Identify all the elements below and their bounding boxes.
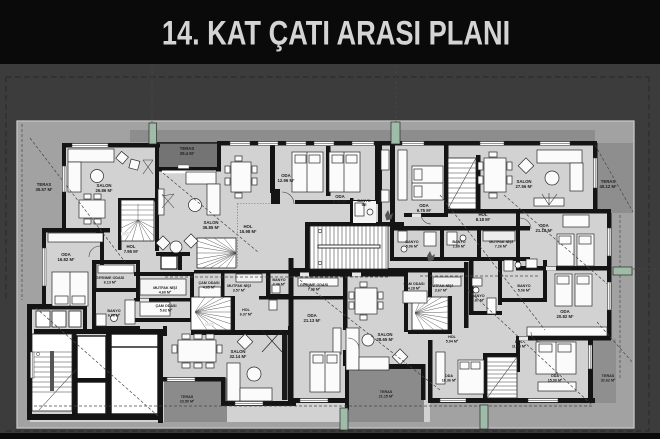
svg-text:SALON36.85 M²: SALON36.85 M² xyxy=(203,220,221,230)
svg-text:14. KAT ÇATI ARASI PLANI: 14. KAT ÇATI ARASI PLANI xyxy=(162,14,510,53)
svg-text:BANYO5.87 M²: BANYO5.87 M² xyxy=(471,294,485,303)
svg-text:SALON26.86 M²: SALON26.86 M² xyxy=(96,183,114,193)
svg-text:BANYO2.46 M²: BANYO2.46 M² xyxy=(272,278,286,287)
svg-text:TERAS32.62 M²: TERAS32.62 M² xyxy=(601,374,616,383)
svg-text:SALON32.14 M²: SALON32.14 M² xyxy=(230,349,248,359)
svg-text:TERAS21.15 M²: TERAS21.15 M² xyxy=(379,390,394,399)
svg-text:BANYO5.06 M²: BANYO5.06 M² xyxy=(517,284,531,293)
svg-text:BANYO1.80 M²: BANYO1.80 M² xyxy=(452,240,466,249)
svg-text:TERAS40.12 M²: TERAS40.12 M² xyxy=(600,179,618,189)
svg-text:BANYO5.06 M²: BANYO5.06 M² xyxy=(405,240,419,249)
svg-text:TERAS23.50 M²: TERAS23.50 M² xyxy=(180,395,195,404)
svg-text:TERAS35.57 M²: TERAS35.57 M² xyxy=(36,182,54,192)
svg-text:SALON28.65 M²: SALON28.65 M² xyxy=(377,332,395,342)
svg-text:SALON27.56 M²: SALON27.56 M² xyxy=(516,179,534,189)
svg-text:TERAS29.4 M²: TERAS29.4 M² xyxy=(180,146,195,156)
svg-text:BANYO6.06 M²: BANYO6.06 M² xyxy=(107,309,121,318)
